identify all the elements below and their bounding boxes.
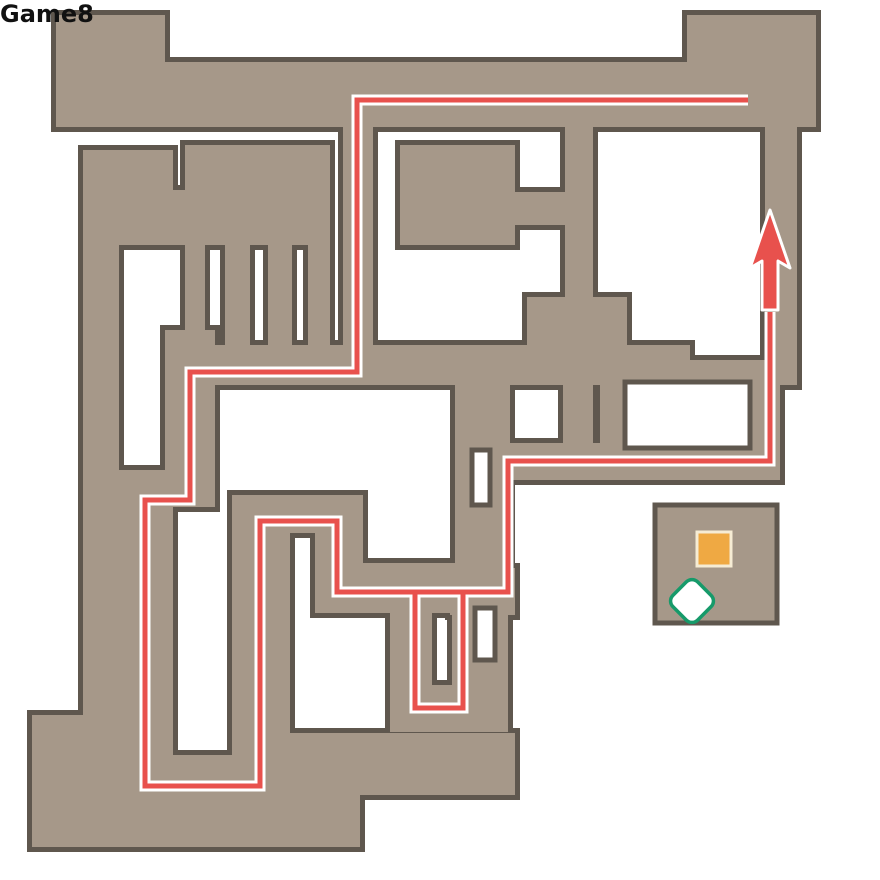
- dungeon-map: START GOAL Game8: [0, 0, 880, 880]
- maze-room: [400, 145, 515, 245]
- game8-logo-text: Game8: [0, 0, 94, 28]
- maze-room: [130, 793, 360, 847]
- maze-room: [32, 715, 130, 847]
- maze-room: [308, 240, 330, 348]
- maze-room: [687, 15, 816, 127]
- chest-icon: [697, 532, 731, 566]
- maze-room: [565, 127, 593, 307]
- maze-hole: [625, 382, 750, 448]
- maze-room: [268, 240, 292, 348]
- maze-hole: [472, 450, 490, 505]
- maze-room: [83, 150, 119, 720]
- maze-room: [160, 190, 220, 245]
- maze-room: [225, 240, 250, 348]
- maze-room: [185, 240, 205, 345]
- maze-room: [563, 383, 593, 460]
- maze-hole: [475, 608, 495, 660]
- map-canvas: [0, 0, 880, 880]
- maze-room: [290, 733, 515, 795]
- maze-room: [513, 192, 568, 225]
